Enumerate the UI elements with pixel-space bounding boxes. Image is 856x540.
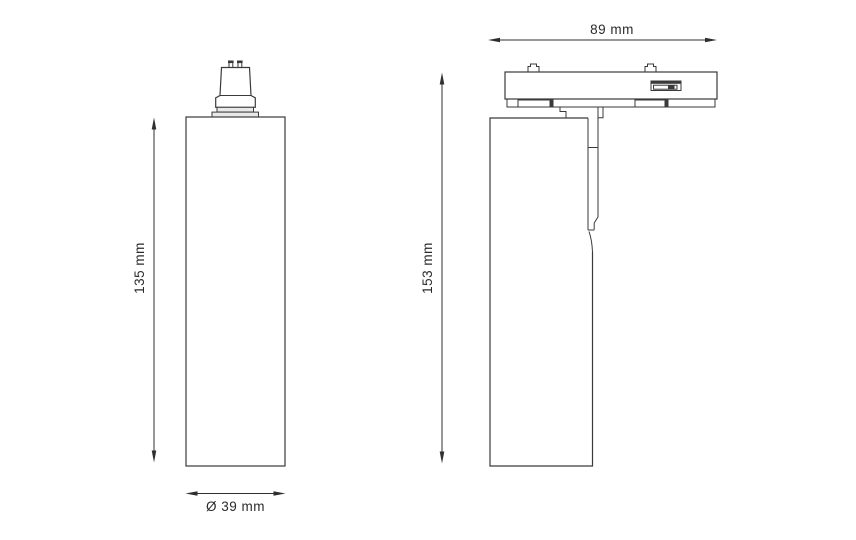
arrowhead-left <box>186 491 198 496</box>
connector-pin-right <box>238 63 242 68</box>
lip-contact-right-cap <box>665 100 669 107</box>
arrowhead-right <box>274 491 286 496</box>
adapter-housing <box>505 72 717 99</box>
arm-right-edge <box>594 108 598 230</box>
lamp-connector-body <box>216 68 256 108</box>
arrowhead-down <box>152 451 157 463</box>
front-view: 135 mm Ø 39 mm <box>132 61 286 515</box>
technical-drawing: 135 mm Ø 39 mm <box>0 0 856 540</box>
switch-knob <box>668 85 675 89</box>
bracket-ear-right <box>598 108 603 118</box>
luminaire-front <box>186 61 285 467</box>
diameter-dimension-front: Ø 39 mm <box>186 491 286 514</box>
height-dimension-side: 153 mm <box>420 73 444 464</box>
dimension-label-side-width: 89 mm <box>590 22 634 37</box>
arrowhead-down <box>440 452 445 464</box>
arm-taper-curve <box>589 232 593 253</box>
track-adapter <box>505 64 717 118</box>
lip-contact-right <box>635 100 668 107</box>
bracket-step-left <box>560 107 566 118</box>
track-clip-right <box>645 64 656 72</box>
connector-flange-upper <box>217 107 254 112</box>
cylinder-body-side <box>490 118 593 466</box>
height-dimension-front: 135 mm <box>132 118 156 463</box>
arrowhead-up <box>152 118 157 130</box>
connector-pin-left <box>229 63 233 68</box>
luminaire-side <box>490 108 598 467</box>
lip-contact-left-cap <box>550 100 554 107</box>
width-dimension-side: 89 mm <box>488 22 717 42</box>
arrowhead-up <box>440 73 445 85</box>
cylinder-body-front <box>186 117 285 466</box>
dimension-label-front-diameter: Ø 39 mm <box>206 499 265 514</box>
lip-contact-left <box>518 100 553 107</box>
dimension-label-side-height: 153 mm <box>420 242 435 294</box>
arrowhead-left <box>488 38 500 43</box>
side-view: 89 mm 153 mm <box>420 22 717 466</box>
arrowhead-right <box>705 38 717 43</box>
technical-drawing-canvas: 135 mm Ø 39 mm <box>0 0 856 540</box>
connector-flange-lower <box>212 112 259 117</box>
dimension-label-front-height: 135 mm <box>132 242 147 294</box>
track-clip-left <box>528 64 539 72</box>
switch-top-band <box>651 81 681 84</box>
